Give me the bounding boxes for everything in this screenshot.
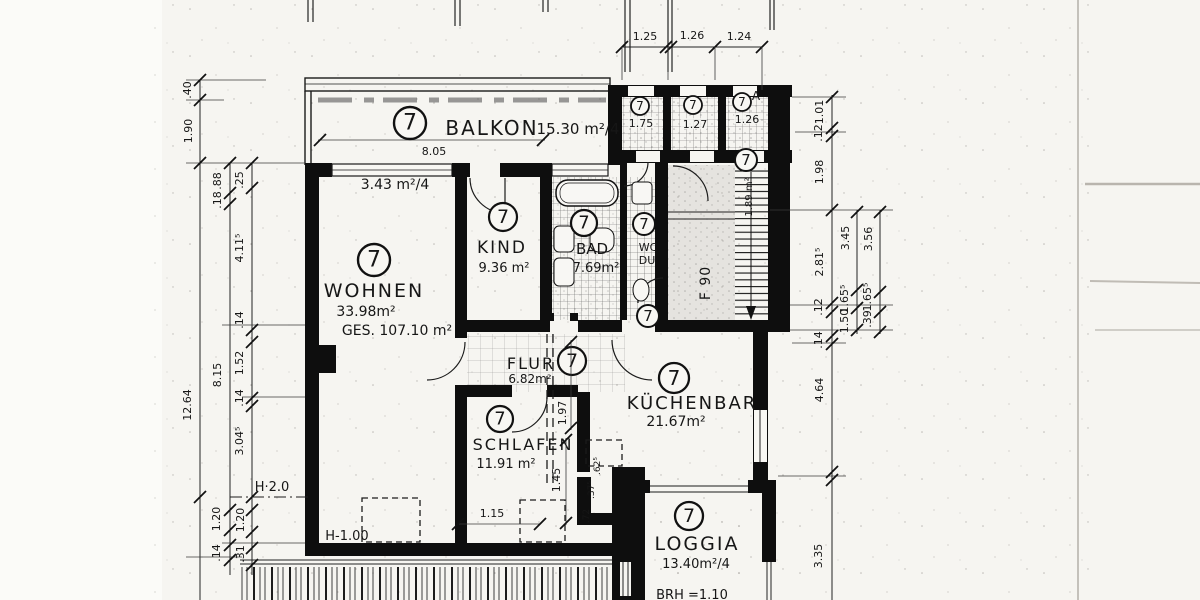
sink [554, 226, 574, 252]
area-abstell-1: 1.75 [629, 117, 654, 130]
badge-treppenhaus: 7 [735, 149, 757, 171]
loggia-sill-height: BRH =1.10 [656, 588, 728, 600]
svg-text:7: 7 [367, 248, 381, 273]
room-area-loggia: 13.40m²/4 [662, 557, 730, 572]
room-name-kind: KIND [477, 238, 527, 258]
dim-top-3: 1.24 [727, 30, 752, 43]
area-treppenhaus: 1.89 m² [744, 177, 755, 216]
room-name-flur: FLUR [507, 354, 555, 373]
badge-wc-door: 7 [637, 305, 659, 327]
dim-left-190: 1.90 [182, 119, 195, 144]
room-area-flur: 6.82m² [508, 372, 551, 386]
dim-left-4115: 4.11⁵ [233, 234, 246, 263]
badge-kuechenbar: 7 [659, 363, 689, 393]
badge-abstell-2: 7 [684, 96, 702, 114]
ann-625: .62⁵ [593, 457, 603, 475]
ann-145: 1.45 [550, 468, 563, 493]
dim-left-14c: .14 [233, 389, 246, 407]
room-name-bad: BAD [576, 240, 608, 258]
window-bad-north [552, 164, 608, 176]
dim-left-14b: .14 [233, 311, 246, 329]
room-area-total: GES. 107.10 m² [342, 323, 452, 339]
svg-text:7: 7 [683, 505, 695, 527]
room-name-du: DU [639, 254, 656, 267]
floorplan-svg: 7 BALKON 15.30 m²/4 8.05 3.43 m²/4 7 WOH… [0, 0, 1200, 600]
dim-left-25: .25 [233, 171, 246, 189]
dim-left-3045: 3.04⁵ [233, 427, 246, 456]
room-area-wohnen: 33.98m² [336, 304, 395, 320]
wc-sink [632, 182, 652, 204]
dim-left-152: 1.52 [233, 351, 246, 376]
badge-schlafen: 7 [487, 406, 513, 432]
dim-right-335: 3.35 [812, 544, 825, 569]
dim-right-12b: .12 [812, 298, 825, 316]
ann-115: 1.15 [480, 507, 505, 520]
wc-toilet [633, 279, 649, 301]
svg-text:7: 7 [668, 366, 681, 390]
room-name-wohnen: WOHNEN [324, 280, 424, 302]
dim-top-1: 1.25 [633, 30, 658, 43]
ann-197: 1.97 [556, 401, 569, 426]
toilet [554, 258, 574, 286]
svg-text:7: 7 [578, 213, 589, 234]
dim-right-39: .39 [861, 310, 874, 328]
svg-text:7: 7 [639, 215, 649, 233]
room-name-kuechenbar: KÜCHENBAR [627, 392, 758, 414]
ann-h100: H-1.00 [325, 529, 368, 544]
dim-left-88: .88 [211, 172, 224, 190]
dim-right-12a: .12 [812, 124, 825, 142]
dim-balkon-width: 8.05 [422, 145, 447, 158]
dim-left-14a: .14 [210, 544, 223, 562]
dim-left-1264: 12.64 [181, 389, 194, 421]
dim-right-198: 1.98 [813, 160, 826, 185]
dim-left-120b: 1.20 [234, 508, 247, 533]
badge-flur: 7 [558, 347, 586, 375]
room-name-schlafen: SCHLAFEN [473, 435, 574, 454]
svg-text:7: 7 [566, 350, 578, 372]
window-wohnen-north [332, 164, 452, 176]
badge-abstell-1: 7 [631, 97, 649, 115]
dim-right-14: .14 [812, 331, 825, 349]
window-share-area: 3.43 m²/4 [361, 177, 430, 193]
room-area-bad: 7.69m² [573, 261, 620, 276]
room-area-schlafen: 11.91 m² [476, 457, 535, 472]
svg-text:7: 7 [738, 95, 746, 109]
dim-left-18: .18 [211, 191, 224, 209]
dim-right-101: 1.01 [813, 100, 826, 125]
badge-balkon-nr: 7 [403, 111, 417, 136]
room-area-kind: 9.36 m² [479, 261, 530, 276]
loggia-east-window-slit [764, 562, 774, 600]
ann-72: .72 [582, 509, 592, 523]
badge-balkon: 7 [394, 107, 426, 139]
badge-wc: 7 [633, 213, 655, 235]
dim-right-356: 3.56 [862, 227, 875, 252]
svg-text:7: 7 [643, 307, 653, 325]
dim-right-464: 4.64 [813, 378, 826, 403]
room-area-balkon: 15.30 m²/4 [537, 120, 620, 138]
badge-bad: 7 [571, 210, 597, 236]
badge-kind: 7 [489, 203, 517, 231]
svg-text:7: 7 [689, 98, 697, 112]
area-abstell-2: 1.27 [683, 118, 708, 131]
room-area-kuechenbar: 21.67m² [646, 414, 705, 430]
room-name-balkon: BALKON [445, 116, 538, 140]
ann-h20: H·2.0 [255, 480, 290, 495]
tag-abstell-3: A [752, 89, 761, 103]
svg-text:7: 7 [636, 99, 644, 113]
fire-rating-label: F 90 [698, 266, 714, 300]
dim-right-150: 1.50 [838, 309, 851, 334]
svg-text:7: 7 [741, 151, 751, 169]
dim-left-31: .31 [234, 545, 247, 563]
dim-left-815: 8.15 [211, 363, 224, 388]
loggia-west-window-slit [620, 562, 631, 596]
room-name-loggia: LOGGIA [655, 533, 740, 555]
dim-right-165b: 1.65⁵ [861, 283, 874, 312]
badge-abstell-3: 7 [733, 93, 751, 111]
dim-left-120a: 1.20 [210, 507, 223, 532]
svg-text:7: 7 [497, 206, 509, 228]
dim-right-345: 3.45 [839, 226, 852, 251]
dim-left-40: .40 [181, 81, 194, 99]
room-name-wc: WC [639, 241, 658, 254]
dim-top-2: 1.26 [680, 29, 705, 42]
dim-right-2815: 2.81⁵ [813, 248, 826, 277]
scanned-floorplan-page: 7 BALKON 15.30 m²/4 8.05 3.43 m²/4 7 WOH… [0, 0, 1200, 600]
window-kueche-east [754, 410, 767, 462]
ann-375: .37⁵ [587, 481, 597, 499]
badge-loggia: 7 [675, 502, 703, 530]
svg-text:7: 7 [494, 409, 505, 430]
badge-wohnen: 7 [358, 244, 390, 276]
left-margin [0, 0, 162, 600]
area-abstell-3: 1.26 [735, 113, 760, 126]
